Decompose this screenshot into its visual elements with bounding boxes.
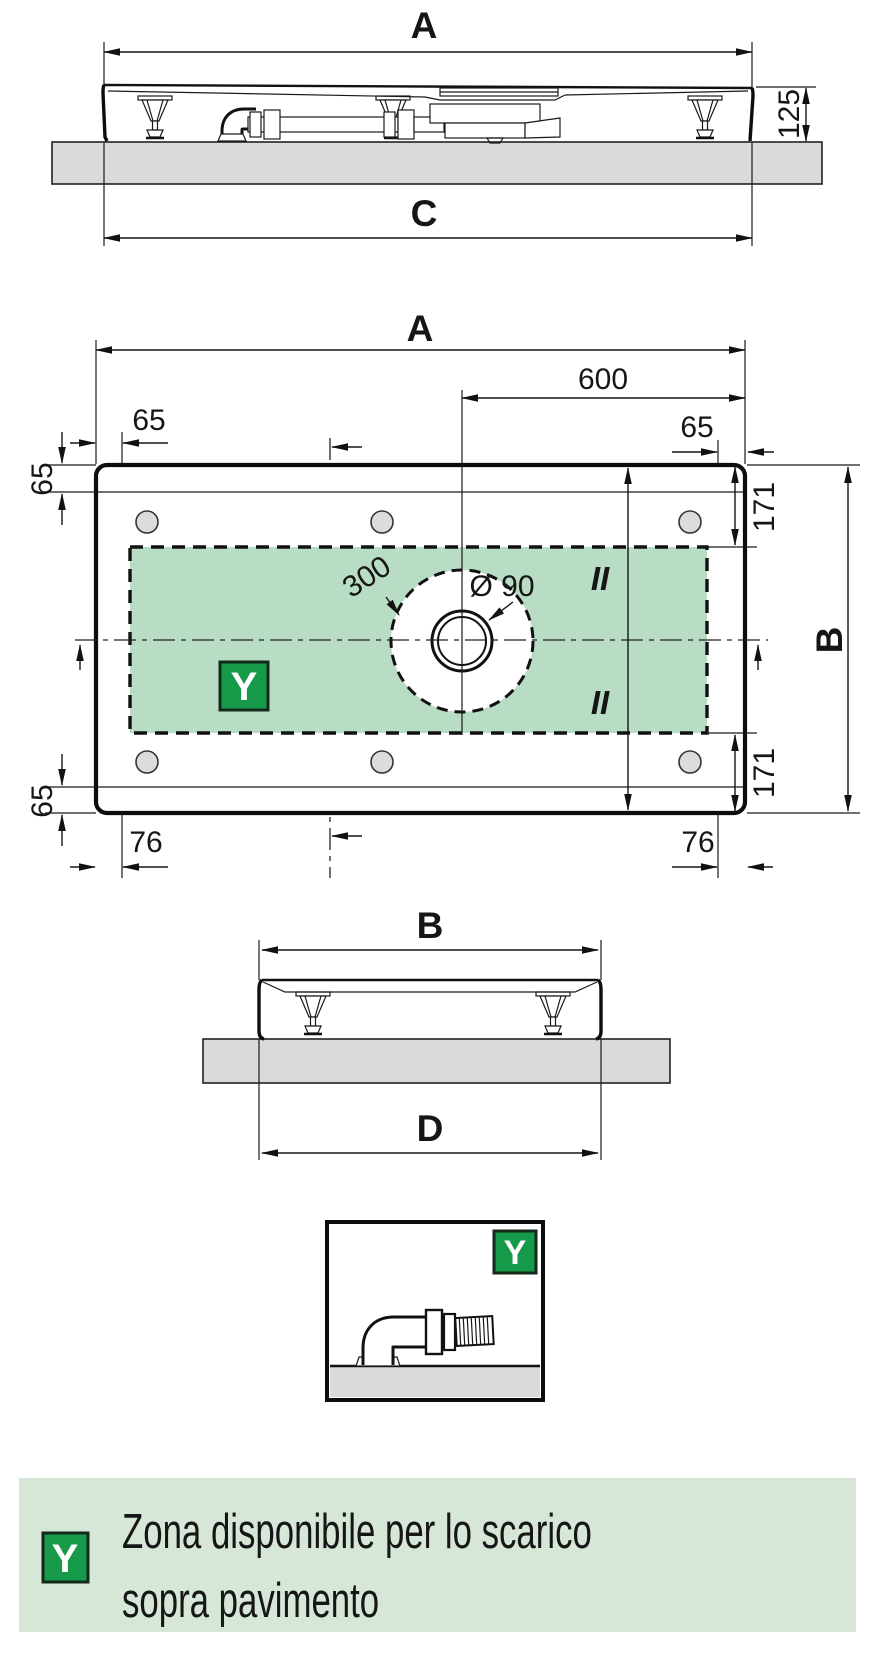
dim-label-65-side-bottom: 65 <box>26 784 59 817</box>
foot-hole <box>371 751 393 773</box>
dim-label-125: 125 <box>773 89 806 139</box>
side-view-end: B D <box>203 905 670 1160</box>
corrugated-hose-icon <box>455 1316 493 1346</box>
shower-tray-drawing: A <box>0 0 874 1650</box>
tray-shell-front <box>103 85 753 141</box>
legend-y-badge: Y <box>43 1533 88 1582</box>
dim-label-171-top: 171 <box>748 482 781 532</box>
foot-hole <box>679 511 701 533</box>
dim-label-B-plan: B <box>809 627 850 654</box>
floor-slab-end <box>203 1039 670 1083</box>
dim-label-76-left: 76 <box>129 826 162 859</box>
foot-hole <box>136 751 158 773</box>
dim-label-600: 600 <box>578 363 628 396</box>
detail-y-badge: Y <box>494 1231 536 1273</box>
foot-hole <box>136 511 158 533</box>
foot-hole <box>679 751 701 773</box>
dim-label-76-right: 76 <box>681 826 714 859</box>
legend-text-line2: sopra pavimento <box>122 1574 379 1628</box>
dim-label-D: D <box>417 1108 444 1149</box>
foot-hole <box>371 511 393 533</box>
dim-label-C: C <box>411 193 438 234</box>
zone-y-badge: Y <box>220 662 268 710</box>
dim-label-65-top-left: 65 <box>132 404 165 437</box>
legend: Y Zona disponibile per lo scarico sopra … <box>19 1478 856 1632</box>
dim-label-B-end: B <box>417 905 444 946</box>
side-view-front: A <box>52 5 822 246</box>
equal-mark-bottom: II <box>591 684 610 721</box>
plan-dim-label-A: A <box>407 308 434 349</box>
callout-diameter-90: Ø 90 <box>469 570 534 603</box>
dim-label-65-side-top: 65 <box>26 462 59 495</box>
equal-mark-top: II <box>591 560 610 597</box>
dim-label-171-bottom: 171 <box>748 748 781 798</box>
drain-detail-box: Y <box>327 1222 543 1400</box>
technical-drawing-page: A <box>0 0 874 1650</box>
plan-view: A 600 65 65 65 65 <box>26 308 860 878</box>
dim-label-A-top: A <box>411 5 438 46</box>
detail-y-badge-letter: Y <box>504 1234 527 1272</box>
legend-text-line1: Zona disponibile per lo scarico <box>122 1505 592 1559</box>
legend-y-badge-letter: Y <box>52 1537 79 1581</box>
zone-y-badge-letter: Y <box>231 665 258 709</box>
dim-label-65-top-right: 65 <box>680 411 713 444</box>
floor-slab <box>52 142 822 184</box>
detail-floor <box>330 1366 540 1397</box>
